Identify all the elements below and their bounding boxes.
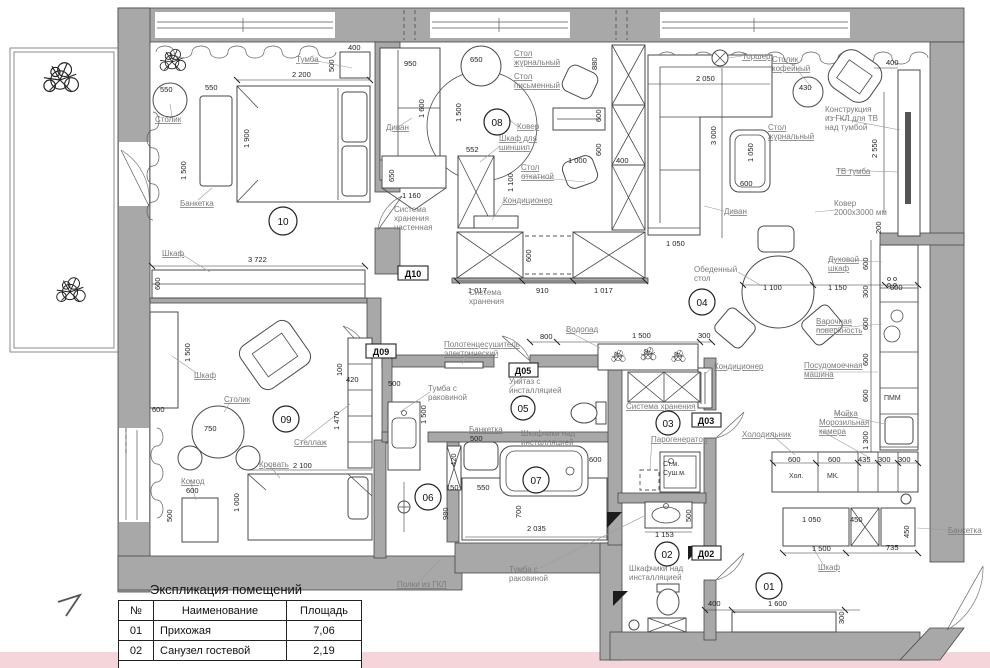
dim-text: 1 017	[594, 286, 613, 295]
dim-text: 150	[446, 483, 459, 492]
dim-text: 650	[470, 55, 483, 64]
dim-text: 550	[160, 85, 173, 94]
label-sofa: Диван	[724, 207, 747, 216]
label-toilet: инсталляцией	[509, 386, 562, 395]
label-rolling-desk: Стол	[521, 163, 540, 172]
legend-cell-no: 01	[119, 621, 154, 641]
dim-text: 735	[886, 543, 899, 552]
dim-text: 950	[404, 59, 417, 68]
dim-text: 1 470	[332, 411, 341, 430]
label-sink: Мойка	[834, 409, 858, 418]
legend-table: № Наименование Площадь 01 Прихожая 7,06 …	[118, 600, 362, 668]
towel-dryer	[445, 362, 483, 368]
dim-text: 300	[861, 285, 870, 298]
dim-text: 400	[616, 156, 629, 165]
plant-icon	[160, 49, 186, 70]
dim-text: 100	[335, 363, 344, 376]
dim-text: 500	[388, 379, 401, 388]
dim-text: 600	[153, 277, 162, 290]
label-journal-table: Стол	[768, 123, 787, 132]
plant-icon	[44, 63, 79, 92]
dim-text: 600	[890, 283, 903, 292]
label-storage: хранения	[469, 297, 504, 306]
dim-text: 300	[878, 455, 891, 464]
toilet	[657, 589, 679, 615]
label-tv-construction: над тумбой	[825, 123, 867, 132]
wardrobe	[150, 312, 178, 408]
room-number: 06	[422, 493, 434, 504]
label-freezer: Морозильная	[819, 418, 869, 427]
door-tag: Д09	[373, 347, 389, 357]
door-tag: Д03	[698, 416, 714, 426]
dim-text: 2 200	[292, 70, 311, 79]
pillow	[342, 146, 367, 196]
dim-text: 1 160	[402, 191, 421, 200]
bench	[464, 442, 498, 470]
label-journal-table: журнальный	[768, 132, 814, 141]
dim-text: 3 722	[248, 255, 267, 264]
dim-text: 3 000	[709, 126, 718, 145]
label-dryer: Суш.м.	[663, 470, 686, 477]
label-cabinets: инсталляцией	[521, 438, 574, 447]
chair	[758, 226, 794, 252]
label-vanity: раковиной	[428, 393, 467, 402]
tv	[905, 112, 911, 204]
dim-text: 420	[449, 453, 458, 466]
label-nightstand: Тумба	[296, 55, 319, 64]
dim-text: 500	[165, 509, 174, 522]
label-freezer: камера	[819, 427, 847, 436]
room08-furniture	[380, 46, 605, 228]
dim-text: 600	[594, 109, 603, 122]
legend-col-name: Наименование	[154, 601, 287, 621]
pillow	[342, 92, 367, 142]
room-number: 03	[662, 419, 674, 430]
label-wardrobe: Шкаф	[818, 563, 840, 572]
legend-cell-area: 2,19	[287, 641, 362, 661]
label-vanity: Тумба с	[428, 384, 457, 393]
coffee-table	[793, 77, 823, 107]
entry-bench	[732, 612, 836, 632]
dim-text: 980	[441, 507, 450, 520]
legend: Экспликация помещений № Наименование Пло…	[118, 582, 362, 668]
toilet	[571, 403, 597, 423]
label-oven: Духовой	[828, 255, 859, 264]
dim-text: 1 000	[568, 156, 587, 165]
room-number: 10	[277, 217, 289, 228]
vanity	[388, 402, 420, 470]
legend-cell-area: 7,06	[287, 621, 362, 641]
dim-text: 2 050	[696, 74, 715, 83]
label-fridge: Холодильник	[742, 430, 791, 439]
dim-text: 1 050	[666, 239, 685, 248]
label-sofa: Диван	[386, 123, 409, 132]
label-wall-storage: Система	[394, 205, 427, 214]
dim-text: 500	[470, 434, 483, 443]
dim-text: 400	[708, 599, 721, 608]
air-conditioner	[474, 216, 518, 228]
dim-text: 600	[186, 486, 199, 495]
label-freezer-abbr: МК.	[827, 473, 839, 480]
dim-text: 750	[204, 424, 217, 433]
dim-text: 700	[514, 505, 523, 518]
label-bench: Банкетка	[180, 199, 214, 208]
label-chinchilla-cabinet: Шкаф для	[499, 134, 537, 143]
dim-text: 500	[327, 59, 336, 72]
dim-text: 1 153	[655, 530, 674, 539]
label-oven: шкаф	[828, 264, 850, 273]
dresser	[182, 498, 218, 542]
plant-icon	[57, 278, 85, 302]
legend-row: 01 Прихожая 7,06	[119, 621, 362, 641]
chair	[236, 446, 260, 470]
dim-text: 420	[346, 375, 359, 384]
label-air-conditioner: Кондиционер	[503, 196, 553, 205]
dim-text: 600	[524, 249, 533, 262]
legend-col-area: Площадь	[287, 601, 362, 621]
label-coffee-table: журнальный	[514, 58, 560, 67]
dim-text: 800	[540, 332, 553, 341]
label-towel-dryer: Полотенцесушитель	[444, 340, 520, 349]
dim-text: 200	[874, 221, 883, 234]
armchair	[236, 316, 315, 393]
dim-text: 600	[828, 455, 841, 464]
label-gkl-shelves: Полки из ГКЛ	[397, 580, 446, 589]
dim-text: 1 500	[183, 343, 192, 362]
label-storage: Система	[469, 288, 502, 297]
room-number: 07	[530, 476, 542, 487]
room-number: 08	[491, 118, 503, 129]
dim-text: 435	[858, 455, 871, 464]
label-tv-construction: Конструкция	[825, 105, 871, 114]
label-desk: Стол	[514, 72, 533, 81]
room-number: 05	[517, 404, 529, 415]
dim-text: 600	[861, 257, 870, 270]
dim-text: 2 100	[293, 461, 312, 470]
dim-text: 1 500	[454, 103, 463, 122]
label-cooktop: Варочная	[816, 317, 852, 326]
legend-col-no: №	[119, 601, 154, 621]
dim-text: 1 600	[417, 99, 426, 118]
dim-text: 1 500	[632, 331, 651, 340]
dim-text: 550	[205, 83, 218, 92]
label-table: Столик	[224, 395, 251, 404]
label-fridge-abbr: Хол.	[789, 473, 803, 480]
dim-text: 300	[698, 331, 711, 340]
label-tv-construction: из ГКЛ для ТВ	[825, 114, 878, 123]
label-washer: Ст.м.	[663, 461, 679, 468]
dim-text: 600	[152, 405, 165, 414]
label-storage: Система хранения	[626, 402, 695, 411]
legend-row-partial	[119, 661, 362, 668]
label-dishwasher-abbr: ПММ	[884, 395, 901, 402]
dim-text: 600	[788, 455, 801, 464]
door-tag: Д02	[698, 549, 714, 559]
coffee-table	[461, 46, 501, 86]
label-carpet: Ковер	[517, 122, 540, 131]
floor-plan-drawing: 550 550 2 200 400 500 1 500 1 900 3 722 …	[0, 0, 990, 668]
label-coffee-table: Столик	[772, 55, 799, 64]
label-carpet: 2000x3000 мм	[834, 208, 887, 217]
label-dining-table: Обеденный	[694, 265, 737, 274]
label-bed: Кровать	[259, 460, 289, 469]
dim-text: 1 500	[419, 405, 428, 424]
dim-text: 600	[594, 143, 603, 156]
dim-text: 2 035	[527, 524, 546, 533]
dim-text: 880	[590, 57, 599, 70]
balcony-outline	[10, 48, 118, 352]
door-tag: Д05	[515, 366, 531, 376]
dim-text: 1 600	[768, 599, 787, 608]
dim-text: 500	[684, 509, 693, 522]
dim-text: 300	[898, 455, 911, 464]
dim-text: 300	[837, 611, 846, 624]
room-number: 09	[280, 415, 292, 426]
dim-text: 430	[799, 83, 812, 92]
label-wall-storage: хранения	[394, 214, 429, 223]
legend-title: Экспликация помещений	[150, 582, 362, 597]
label-side-table: Столик	[155, 115, 182, 124]
label-vanity: Тумба с	[509, 565, 538, 574]
label-cabinets: инсталляцией	[629, 573, 682, 582]
label-dresser: Комод	[181, 477, 205, 486]
label-air-conditioner: Кондиционер	[714, 362, 764, 371]
pencil-mark	[58, 595, 80, 616]
dim-text: 550	[477, 483, 490, 492]
dim-text: 1 000	[232, 493, 241, 512]
dim-text: 2 550	[870, 139, 879, 158]
label-dishwasher: Посудомоечная	[804, 361, 863, 370]
nightstand	[340, 52, 370, 78]
label-chinchilla-cabinet: шиншил	[499, 143, 530, 152]
bench	[200, 96, 232, 186]
room-number: 04	[696, 298, 708, 309]
legend-cell-name: Прихожая	[154, 621, 287, 641]
label-bench: Банкетка	[948, 526, 982, 535]
label-shelving: Стеллаж	[294, 438, 327, 447]
dining-table	[742, 256, 814, 328]
room-number: 02	[661, 550, 673, 561]
round-table	[192, 406, 244, 458]
label-coffee-table: Стол	[514, 49, 533, 58]
legend-row: 02 Санузел гостевой 2,19	[119, 641, 362, 661]
label-cabinets: Шкафчики над	[521, 429, 576, 438]
dim-text: 450	[850, 515, 863, 524]
label-floor-lamp: Торшер	[742, 52, 771, 61]
label-dining-table: стол	[694, 274, 711, 283]
dim-text: 600	[589, 455, 602, 464]
dim-text: 1 500	[179, 161, 188, 180]
dim-text: 1 300	[861, 431, 870, 450]
label-bench: Банкетка	[469, 425, 503, 434]
label-cooktop: поверхность	[816, 326, 862, 335]
dim-text: 552	[466, 145, 479, 154]
floor-plan-page: 550 550 2 200 400 500 1 500 1 900 3 722 …	[0, 0, 990, 668]
door-tag: Д10	[405, 269, 421, 279]
dim-text: 1 100	[506, 173, 515, 192]
label-wall-storage: настенная	[394, 223, 433, 232]
legend-cell-no: 02	[119, 641, 154, 661]
dim-text: 910	[536, 286, 549, 295]
room-number: 01	[763, 582, 775, 593]
dim-text: 1 900	[242, 129, 251, 148]
label-rolling-desk: откатной	[521, 172, 554, 181]
label-steam-generator: Парогенератор	[651, 435, 708, 444]
label-toilet: Унитаз с	[509, 377, 540, 386]
dim-text: 1 050	[746, 143, 755, 162]
hall-wardrobe	[783, 508, 849, 546]
dim-text: 400	[348, 43, 361, 52]
dim-text: 650	[387, 169, 396, 182]
label-carpet: Ковер	[834, 199, 857, 208]
label-wardrobe: Шкаф	[194, 371, 216, 380]
label-tv-stand: ТВ тумба	[836, 167, 871, 176]
label-coffee-table: кофейный	[772, 64, 810, 73]
dim-text: 450	[902, 525, 911, 538]
dim-text: 1 100	[763, 283, 782, 292]
label-cabinets: Шкафчики над	[629, 564, 684, 573]
armchair	[823, 44, 888, 108]
dim-text: 600	[740, 179, 753, 188]
dim-text: 1 150	[828, 283, 847, 292]
dim-text: 1 500	[812, 544, 831, 553]
dim-text: 400	[886, 58, 899, 67]
dim-text: 600	[861, 389, 870, 402]
dim-text: 1 050	[802, 515, 821, 524]
label-towel-dryer: электрический	[444, 349, 498, 358]
label-dishwasher: машина	[804, 370, 834, 379]
chair	[178, 446, 202, 470]
sink	[885, 417, 913, 444]
label-desk: письменный	[514, 81, 560, 90]
label-wardrobe: Шкаф	[162, 249, 184, 258]
label-waterfall: Водопад	[566, 325, 599, 334]
steam-generator	[640, 470, 659, 490]
label-vanity: раковиной	[509, 574, 548, 583]
legend-cell-name: Санузел гостевой	[154, 641, 287, 661]
